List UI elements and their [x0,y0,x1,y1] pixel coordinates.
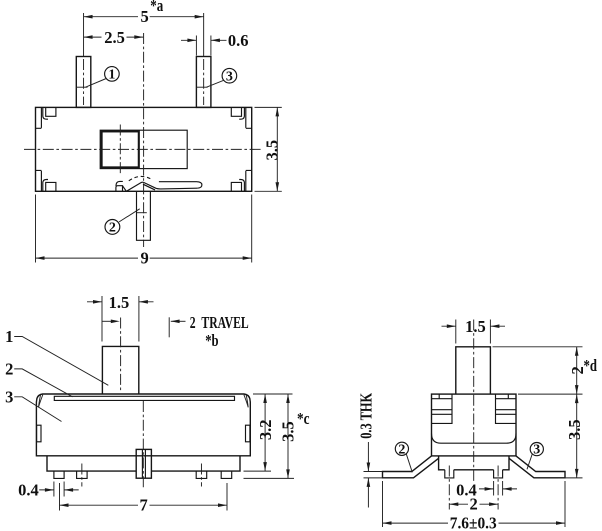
svg-text:3.5: 3.5 [279,421,298,442]
svg-text:3.5: 3.5 [263,140,282,161]
svg-text:3.5: 3.5 [565,419,584,440]
svg-text:7: 7 [139,496,147,515]
svg-text:3: 3 [226,69,233,84]
svg-text:5: 5 [140,7,148,26]
svg-text:3: 3 [5,388,13,407]
svg-text:2: 2 [5,360,13,379]
svg-text:0.3 THK: 0.3 THK [357,393,376,439]
svg-text:1.5: 1.5 [109,293,130,312]
svg-text:2 TRAVEL: 2 TRAVEL [190,313,249,332]
svg-text:2.5: 2.5 [104,28,125,47]
svg-text:1.5: 1.5 [465,317,486,336]
svg-text:1: 1 [108,68,115,83]
svg-text:3: 3 [533,443,540,458]
svg-text:2: 2 [470,495,478,514]
svg-text:3.2: 3.2 [256,419,275,440]
svg-text:*b: *b [205,331,218,350]
svg-text:2: 2 [109,221,116,236]
svg-text:0.6: 0.6 [228,31,249,50]
svg-text:2: 2 [398,442,405,457]
svg-text:*d: *d [584,356,598,375]
svg-text:1: 1 [5,327,13,346]
svg-text:9: 9 [140,249,148,268]
svg-text:*a: *a [150,0,163,15]
svg-text:0.4: 0.4 [18,480,39,499]
svg-text:*c: *c [297,409,310,428]
svg-text:7.6±0.3: 7.6±0.3 [450,514,497,531]
